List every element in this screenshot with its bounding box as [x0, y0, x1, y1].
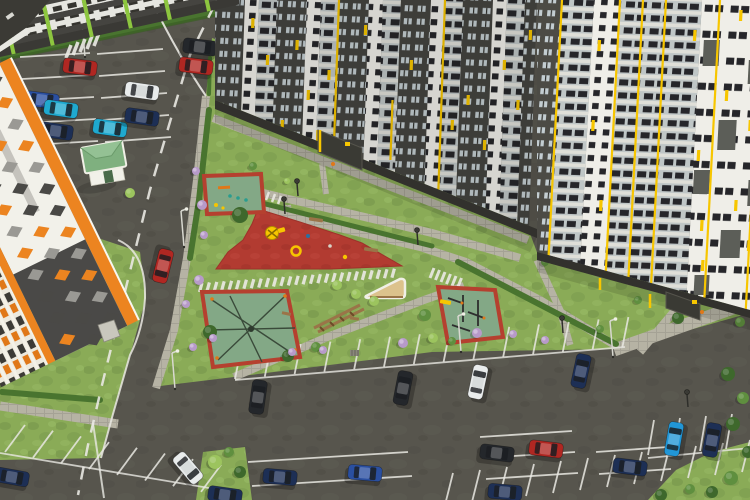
- trash-bin: [331, 162, 335, 166]
- yellow-accent: [597, 40, 601, 51]
- yellow-accent: [697, 150, 701, 161]
- trash-bin: [700, 310, 704, 314]
- yellow-accent: [700, 220, 704, 231]
- net-post: [210, 297, 214, 301]
- yellow-accent: [591, 120, 595, 131]
- aerial-render-scene: [0, 0, 750, 500]
- swing-seat: [236, 196, 240, 200]
- car: [484, 483, 523, 500]
- yellow-accent: [725, 90, 729, 101]
- car: [344, 464, 383, 487]
- yellow-accent: [734, 200, 738, 211]
- facade-dark-patch: [694, 275, 710, 295]
- spring-rider: [343, 255, 347, 259]
- render-canvas: [0, 0, 750, 500]
- play-item: [221, 206, 224, 209]
- swing-seat: [244, 198, 248, 202]
- net-post: [215, 356, 219, 360]
- swing-seat: [228, 194, 232, 198]
- net-center: [248, 326, 254, 332]
- play-dome: [328, 244, 332, 248]
- entrance-sign: [692, 300, 697, 304]
- yellow-accent: [701, 260, 705, 271]
- kids-court: [204, 174, 264, 214]
- net-post: [283, 294, 287, 298]
- drain-grate: [350, 350, 359, 356]
- yellow-accent: [693, 30, 697, 41]
- yellow-accent: [739, 10, 743, 21]
- kids-court-surface: [204, 174, 264, 214]
- facade-dark-patch: [719, 230, 740, 258]
- facade-dark-patch: [693, 170, 710, 194]
- spring-rider: [306, 234, 310, 238]
- spring-rider: [300, 229, 304, 233]
- kids-court-bench: [218, 186, 230, 190]
- footpath-entrance-stub: [322, 164, 326, 194]
- yellow-accent: [599, 200, 603, 211]
- bar-post: [461, 302, 464, 305]
- bar-post: [483, 317, 486, 320]
- entrance-sign: [345, 142, 350, 146]
- play-item: [214, 203, 218, 207]
- facade-dark-patch: [717, 120, 737, 150]
- car: [259, 468, 298, 491]
